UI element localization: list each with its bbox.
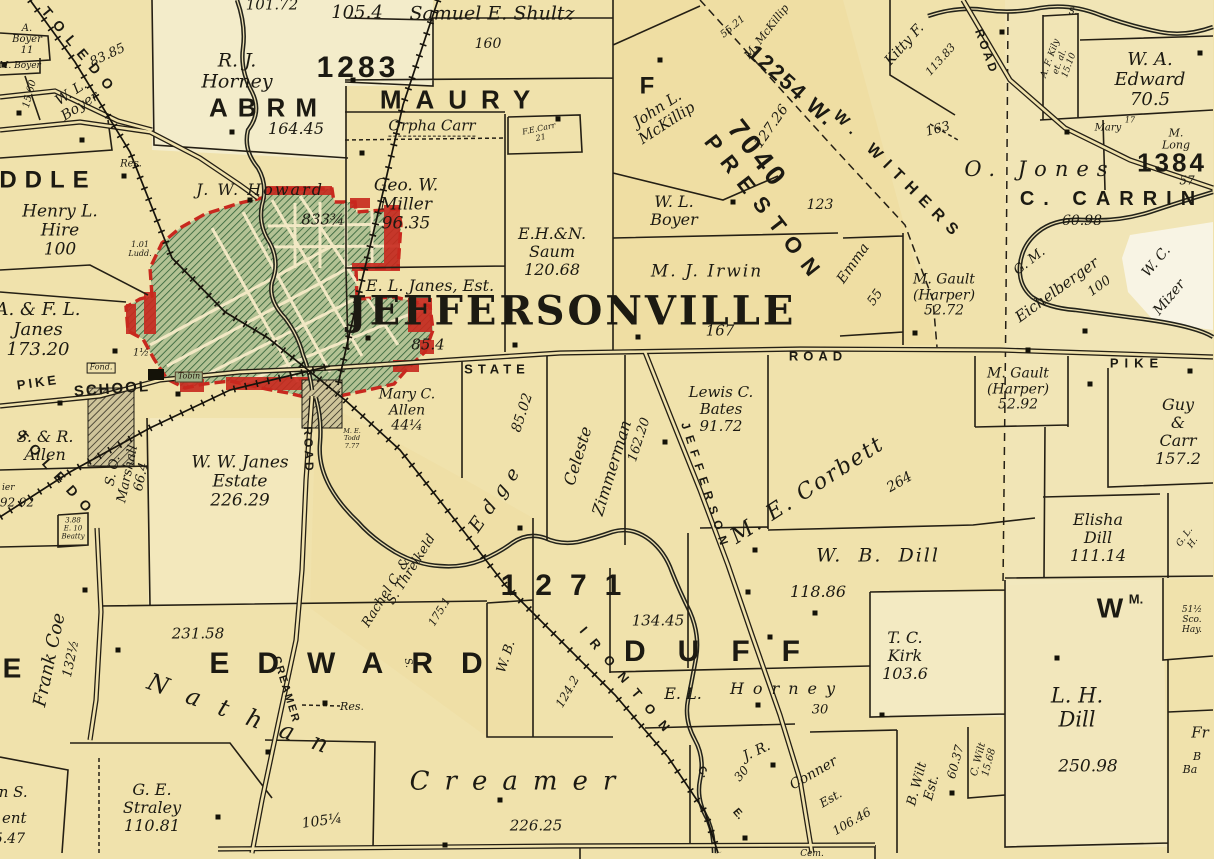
mill-hatch-west xyxy=(88,388,134,466)
station-building xyxy=(148,369,164,380)
map-linework xyxy=(0,0,1214,859)
plat-map: TOLEDO TOLEDO A. Boyer 11 M. Boyer 15.60… xyxy=(0,0,1214,859)
